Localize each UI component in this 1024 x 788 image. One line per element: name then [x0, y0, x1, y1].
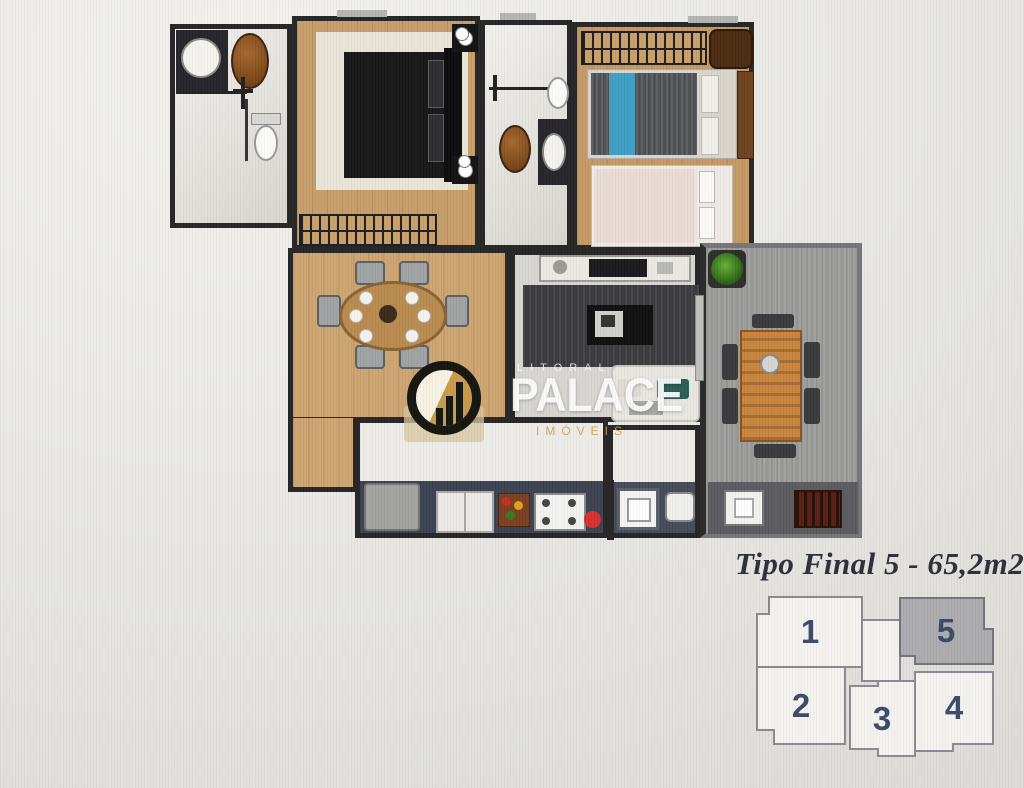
shower-handle — [493, 75, 497, 101]
plan-title: Tipo Final 5 - 65,2m2 — [735, 546, 1024, 582]
console-decor — [657, 262, 673, 274]
bed-pillow — [699, 207, 715, 239]
toilet-tank — [251, 113, 281, 125]
terrace-table — [740, 330, 802, 442]
burner — [568, 517, 576, 525]
service-sink-basin — [627, 498, 651, 522]
wood-basin — [231, 33, 269, 89]
closet-rack — [581, 31, 707, 65]
bed-pillow — [428, 60, 444, 108]
plate — [417, 309, 431, 323]
plate — [405, 291, 419, 305]
partition-wall — [245, 99, 248, 161]
toilet-bowl — [547, 77, 569, 109]
room-living — [510, 250, 700, 422]
room-bathroom-1 — [170, 24, 292, 228]
bed-pillow — [701, 75, 719, 113]
keyplan-shapes — [752, 592, 1002, 764]
prep-item-red — [502, 497, 511, 506]
table-centerpiece — [379, 305, 397, 323]
fridge — [364, 483, 420, 531]
console-decor — [553, 260, 567, 274]
room-dining-extension — [288, 418, 358, 492]
bed-pillow — [701, 117, 719, 155]
shower-handle-bar — [233, 89, 253, 93]
kitchen-service-wall — [607, 480, 614, 540]
wood-basin — [499, 125, 531, 173]
terrace-chair — [804, 342, 820, 378]
cooktop — [534, 493, 586, 531]
grill-icon — [794, 490, 842, 528]
keyplan-core-shape — [862, 620, 900, 681]
sink-oval — [542, 133, 566, 171]
dining-chair — [317, 295, 341, 327]
room-bedroom-2 — [572, 22, 754, 250]
bed-b-blanket — [595, 169, 695, 243]
room-service — [608, 425, 700, 538]
bed-pillow — [699, 171, 715, 203]
plant-icon — [711, 253, 743, 285]
burner — [542, 499, 550, 507]
red-bowl — [584, 511, 601, 528]
keyplan: 1 2 3 4 5 — [752, 592, 1002, 764]
hinge-dot — [458, 155, 471, 168]
prep-item-yellow — [514, 501, 523, 510]
plate — [405, 329, 419, 343]
tray-item — [601, 315, 615, 327]
plate — [359, 291, 373, 305]
room-dining — [288, 248, 510, 422]
prep-item-green — [506, 511, 515, 520]
terrace-bench — [754, 444, 796, 458]
keyplan-unit-3-label: 3 — [873, 700, 891, 738]
keyplan-unit-5-label: 5 — [937, 612, 955, 650]
armchair-brown — [709, 29, 753, 69]
terrace-chair — [804, 388, 820, 424]
window-mark — [337, 10, 387, 17]
terrace-sink-basin — [734, 498, 754, 518]
sofa-cushion-teal — [657, 379, 689, 399]
dining-chair — [445, 295, 469, 327]
sliding-door — [695, 295, 704, 381]
room-terrace — [700, 243, 862, 538]
cabinet-divider — [464, 491, 466, 533]
tv-screen — [589, 259, 647, 277]
room-kitchen — [355, 418, 608, 538]
table-centerpiece — [760, 354, 780, 374]
plate — [359, 329, 373, 343]
terrace-bench — [752, 314, 794, 328]
burner — [568, 499, 576, 507]
bed-pillow — [428, 114, 444, 162]
wardrobe-strip — [737, 71, 754, 159]
burner — [542, 517, 550, 525]
keyplan-unit-1-label: 1 — [801, 613, 819, 651]
page: LITORAL PALACE IMÓVEIS Tipo Final 5 - 65… — [0, 0, 1024, 788]
terrace-chair — [722, 344, 738, 380]
room-bedroom-1 — [292, 16, 480, 250]
room-bathroom-2 — [480, 20, 572, 250]
plate — [349, 309, 363, 323]
sofa-throw — [629, 401, 663, 415]
toilet-bowl — [254, 125, 278, 161]
bed-a-blanket — [591, 73, 697, 155]
terrace-chair — [722, 388, 738, 424]
closet-rack — [299, 214, 437, 246]
sink-round — [181, 38, 221, 78]
bed-a-runner-blue — [609, 73, 635, 155]
sofa-cushion — [617, 379, 641, 397]
window-mark — [500, 13, 536, 20]
keyplan-unit-4-label: 4 — [945, 689, 963, 727]
washer — [665, 492, 695, 522]
hinge-dot — [455, 27, 469, 41]
keyplan-unit-2-label: 2 — [792, 687, 810, 725]
window-mark — [688, 16, 738, 23]
